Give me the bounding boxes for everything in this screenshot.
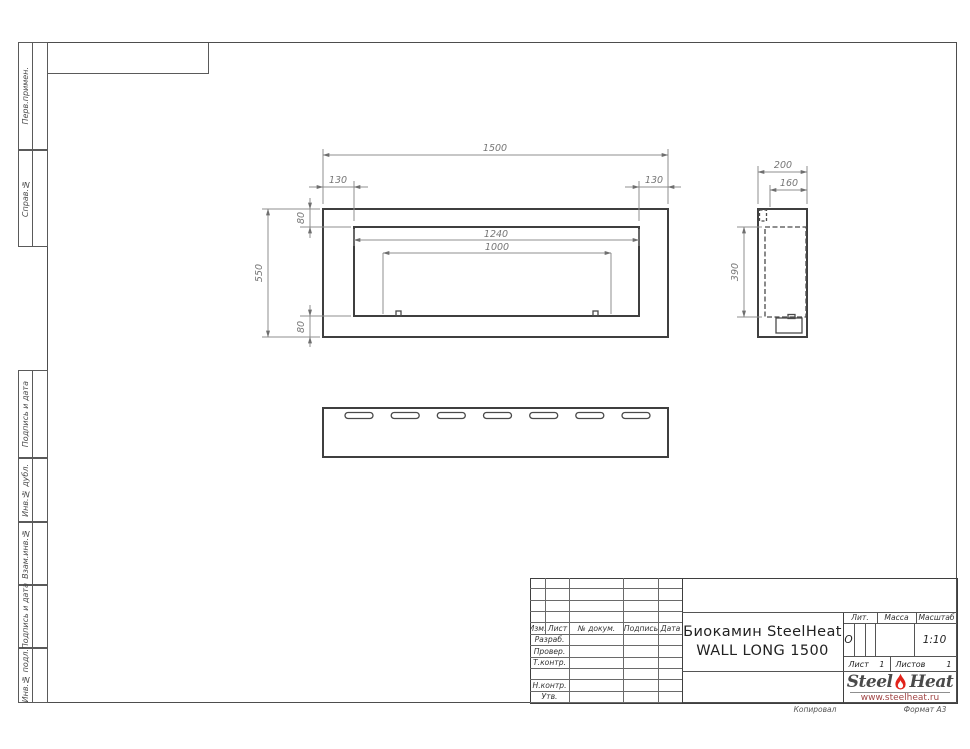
row-nkontr: Н.контр.: [530, 680, 570, 691]
dim-margin-left: 130: [329, 175, 347, 186]
logo-steel: Steel: [847, 672, 893, 692]
side-dimension-lines: [744, 172, 807, 317]
row-razrab: Разраб.: [530, 635, 570, 646]
bottom-view: [323, 408, 668, 457]
col-header-list: Лист: [546, 623, 570, 634]
dim-overall-height: 550: [254, 264, 265, 282]
row-utv: Утв.: [530, 692, 570, 703]
dim-margin-right: 130: [645, 175, 663, 186]
sheets-label: Листов: [896, 660, 926, 669]
dim-opening-width: 1240: [484, 229, 508, 240]
col-header-data: Дата: [659, 623, 682, 634]
front-view: 1500 130 130 80 550 80 1240 1000: [254, 143, 681, 347]
scale-value: 1:10: [915, 624, 955, 656]
dim-margin-bottom: 80: [296, 321, 307, 333]
revision-table: Изм. Лист № докум. Подпись Дата Разраб. …: [530, 578, 682, 703]
scale-label: Масштаб: [917, 612, 957, 623]
side-burner-block: [776, 318, 802, 333]
company-logo: Steel Heat www.steelheat.ru: [844, 672, 956, 702]
dim-depth: 200: [774, 160, 792, 171]
vent-slots: [345, 413, 650, 419]
flame-icon: [893, 673, 908, 692]
designation-cell: [683, 579, 956, 611]
col-header-izm: Изм.: [530, 623, 546, 634]
col-header-dokum: № докум.: [570, 623, 624, 634]
lit-value: О: [844, 624, 855, 656]
front-extension-lines: [262, 149, 681, 347]
side-view: 200 160 390: [730, 160, 807, 337]
document-title: Биокамин SteelHeat WALL LONG 1500: [682, 612, 843, 671]
sheet-label: Лист: [849, 660, 869, 669]
mass-value: [876, 624, 915, 656]
document-title-line2: WALL LONG 1500: [696, 643, 828, 659]
footer-format: Формат А3: [892, 705, 958, 714]
logo-heat: Heat: [909, 672, 953, 692]
dim-inner-depth: 160: [780, 178, 798, 189]
lit-mass-scale-table: Лит. Масса Масштаб О 1:10 Лист 1 Листов …: [844, 612, 958, 671]
logo-url: www.steelheat.ru: [850, 692, 950, 703]
dim-overall-width: 1500: [483, 143, 507, 154]
sheet-value: 1: [879, 660, 884, 669]
dim-burner-width: 1000: [485, 242, 509, 253]
organization-cell: [683, 672, 842, 702]
side-hidden-bracket: [760, 210, 767, 221]
footer-copied: Копировал: [780, 705, 850, 714]
sheets-value: 1: [946, 660, 951, 669]
row-prover: Провер.: [530, 646, 570, 657]
col-header-podpis: Подпись: [624, 623, 659, 634]
side-hidden-opening: [765, 227, 806, 317]
document-title-line1: Биокамин SteelHeat: [683, 624, 842, 640]
mass-label: Масса: [878, 612, 917, 623]
row-tkontr: Т.контр.: [530, 658, 570, 669]
dim-margin-top: 80: [296, 212, 307, 224]
lit-label: Лит.: [844, 612, 878, 623]
dim-opening-height: 390: [730, 263, 741, 281]
